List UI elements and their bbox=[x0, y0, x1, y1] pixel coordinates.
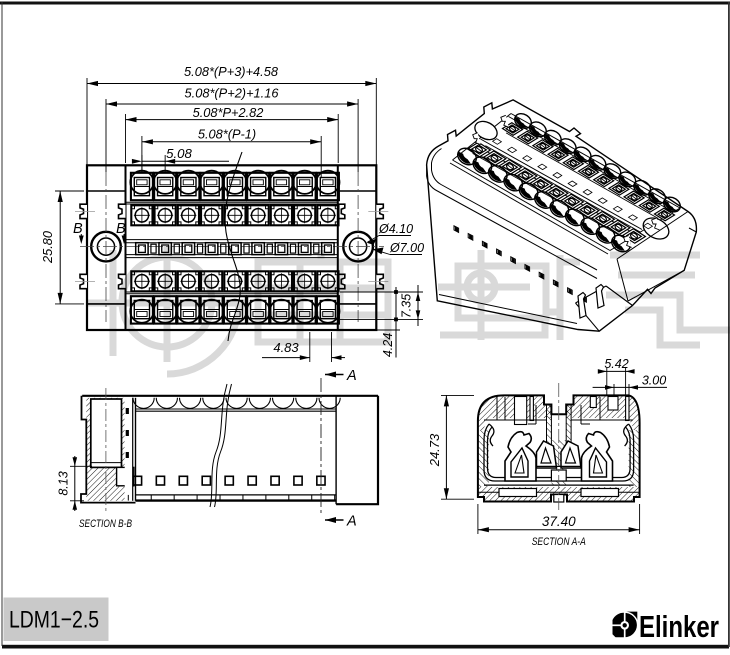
svg-text:5.08: 5.08 bbox=[166, 146, 192, 161]
svg-text:Elinker: Elinker bbox=[639, 609, 719, 644]
svg-text:24.73: 24.73 bbox=[427, 433, 442, 467]
svg-text:5.42: 5.42 bbox=[604, 357, 628, 371]
svg-text:25.80: 25.80 bbox=[40, 230, 55, 264]
svg-text:A: A bbox=[346, 514, 357, 530]
svg-text:37.40: 37.40 bbox=[542, 514, 576, 529]
svg-text:5.08*(P-1): 5.08*(P-1) bbox=[198, 127, 256, 142]
svg-text:5.08*(P+3)+4.58: 5.08*(P+3)+4.58 bbox=[184, 64, 279, 79]
svg-text:Ø7.00: Ø7.00 bbox=[389, 241, 424, 255]
svg-text:LDM1−2.5: LDM1−2.5 bbox=[9, 607, 99, 634]
svg-text:A: A bbox=[346, 368, 357, 384]
svg-text:7.35: 7.35 bbox=[400, 294, 414, 318]
svg-text:8.13: 8.13 bbox=[57, 471, 71, 495]
svg-text:Ø4.10: Ø4.10 bbox=[378, 222, 413, 236]
svg-text:3.00: 3.00 bbox=[642, 374, 666, 388]
svg-text:5.08*(P+2)+1.16: 5.08*(P+2)+1.16 bbox=[185, 86, 280, 101]
svg-text:SECTION B-B: SECTION B-B bbox=[79, 518, 132, 530]
svg-text:5.08*P+2.82: 5.08*P+2.82 bbox=[193, 105, 264, 120]
svg-text:SECTION A-A: SECTION A-A bbox=[532, 536, 586, 548]
